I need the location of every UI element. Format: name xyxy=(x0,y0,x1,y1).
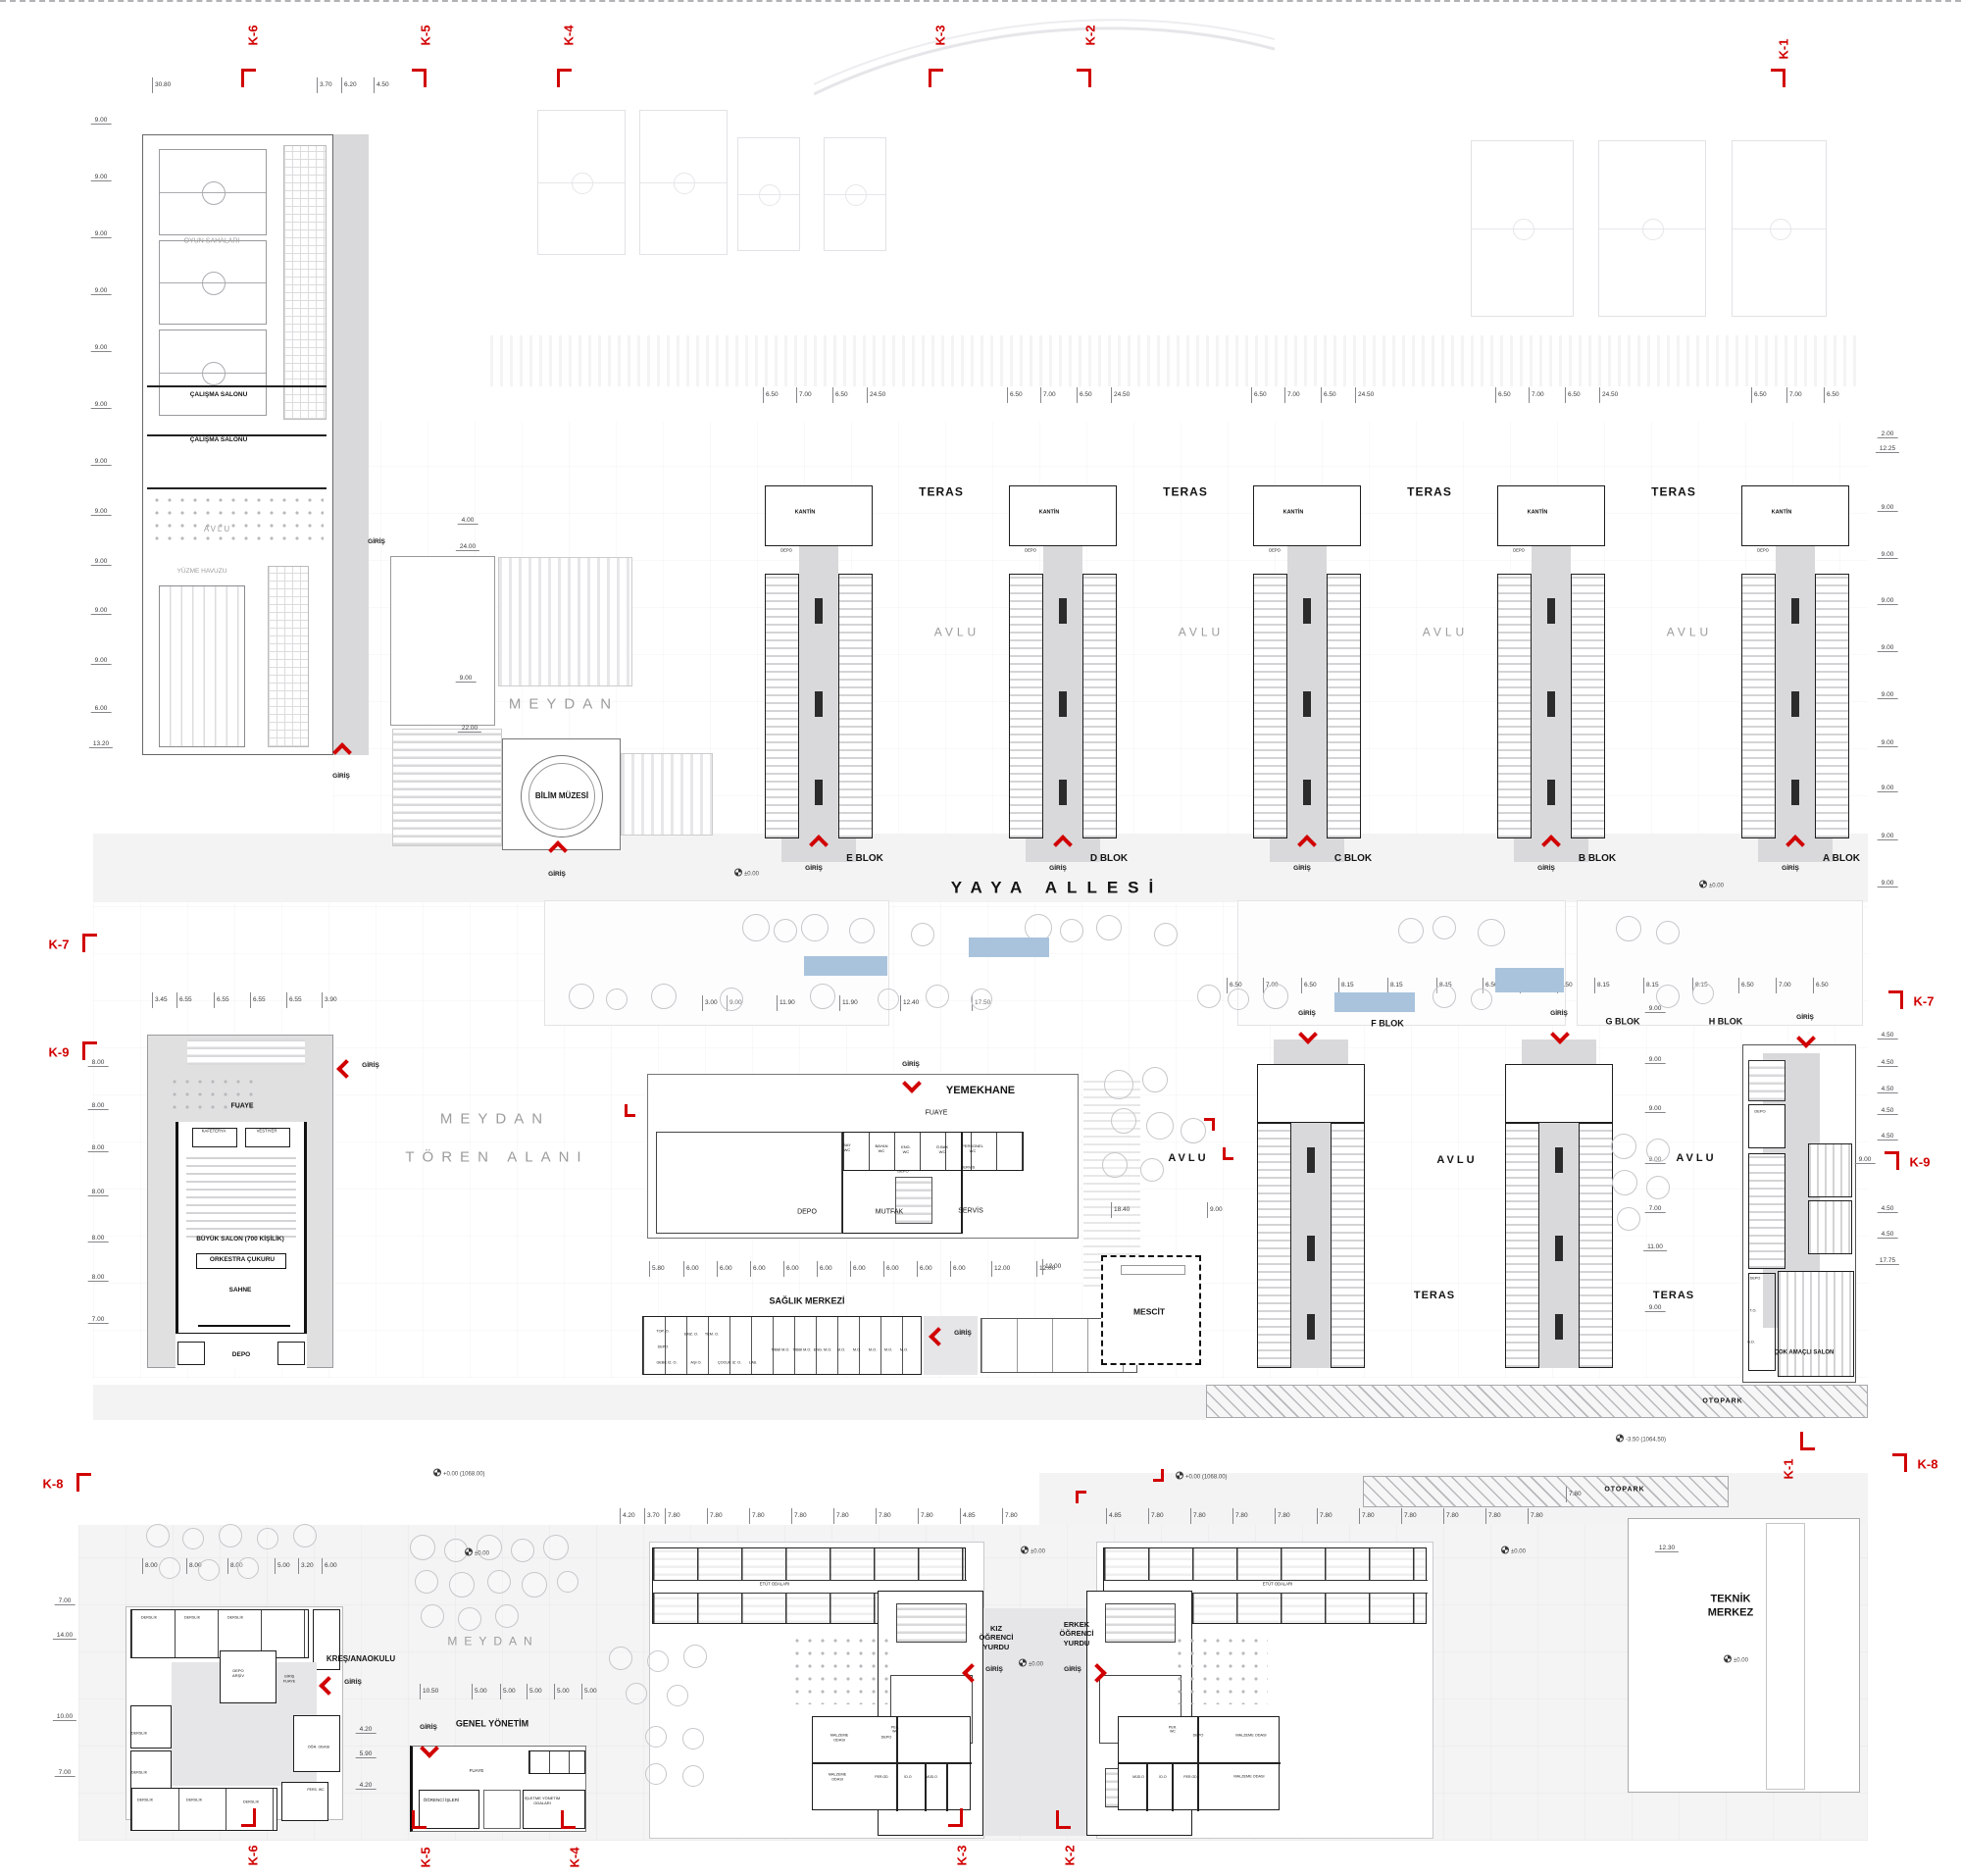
entrance-arrow-icon xyxy=(929,1325,946,1343)
dimension-label: 7.80 xyxy=(1275,1512,1290,1519)
canteen-rooms xyxy=(1741,485,1849,546)
area-label: PER.OD xyxy=(1183,1775,1196,1779)
area-label: M.O. xyxy=(869,1348,877,1353)
section-marker-label: K-2 xyxy=(1083,25,1098,46)
faint-court xyxy=(824,137,886,251)
area-label: DEPO xyxy=(232,1351,250,1359)
area-label: DEPO xyxy=(1269,547,1281,552)
area-label: TIBBİ M.O. xyxy=(772,1348,790,1353)
area-label: BÜYÜK SALON (700 KİŞİLİK) xyxy=(196,1236,284,1243)
dimension-label: 6.00 xyxy=(322,1562,337,1569)
dimension-label: 7.80 xyxy=(1443,1512,1459,1519)
section-marker-label: K-7 xyxy=(49,938,70,952)
area-label: TEM. O. xyxy=(705,1333,719,1338)
tree-icon xyxy=(1616,916,1641,941)
dimension-label: 8.00 xyxy=(142,1562,158,1569)
dimension-label: 4.85 xyxy=(960,1512,976,1519)
canteen-rooms xyxy=(1497,485,1605,546)
entrance-label: GİRİŞ xyxy=(1550,1010,1568,1018)
area-label: KAFETERYA xyxy=(202,1128,226,1133)
section-marker-bracket-icon xyxy=(1888,990,1903,1009)
dimension-label: 7.80 xyxy=(791,1512,807,1519)
area-label: M.O. xyxy=(884,1348,892,1353)
tree-icon xyxy=(198,1559,220,1581)
faint-court xyxy=(737,137,800,251)
area-label: DEPO xyxy=(1513,547,1525,552)
entrance-label: GİRİŞ xyxy=(332,773,350,781)
area-label: TERAS xyxy=(919,485,964,500)
tree-icon xyxy=(926,985,949,1008)
dimension-label: 9.00 xyxy=(1878,597,1898,605)
level-marker: +0.00 (1068.00) xyxy=(1176,1472,1228,1481)
tree-icon xyxy=(651,984,677,1009)
dimension-label: 8.00 xyxy=(88,1102,109,1110)
area-label: F BLOK xyxy=(1371,1018,1404,1029)
area-label: PER. WC xyxy=(891,1726,899,1735)
dimension-label: 24.50 xyxy=(1111,391,1130,398)
area-label: FUAYE xyxy=(926,1110,948,1119)
section-marker-label: K-4 xyxy=(568,1848,582,1868)
dimension-label: 5.00 xyxy=(554,1688,570,1695)
dimension-label: 9.00 xyxy=(1878,551,1898,559)
section-marker-label: K-9 xyxy=(1910,1155,1931,1170)
mihrab-niche xyxy=(1121,1265,1185,1275)
tree-icon xyxy=(1611,1134,1636,1159)
classroom-wing xyxy=(1009,574,1043,838)
entrance-label: GİRİŞ xyxy=(985,1666,1003,1674)
stair-core xyxy=(1555,1147,1563,1173)
wall xyxy=(1172,1762,1174,1811)
tree-icon xyxy=(410,1535,435,1560)
area-label: ÖĞR. ODASI xyxy=(308,1746,330,1750)
classroom-block-a xyxy=(1741,485,1849,862)
section-marker-label: K-6 xyxy=(246,1846,261,1866)
area-label: FUAYE xyxy=(470,1768,484,1774)
entrance-arrow-icon xyxy=(336,1057,354,1075)
dimension-label: 7.80 xyxy=(707,1512,723,1519)
area-label: FUAYE xyxy=(230,1103,253,1112)
dimension-label: 5.00 xyxy=(581,1688,597,1695)
dimension-label: 9.00 xyxy=(1878,880,1898,887)
dimension-label: 7.00 xyxy=(1529,391,1544,398)
meydan-building xyxy=(390,556,495,726)
auditorium-building xyxy=(147,1035,333,1368)
dimension-label: 9.00 xyxy=(1878,504,1898,512)
side-room xyxy=(177,1342,205,1365)
multipurpose-hall xyxy=(1778,1271,1854,1377)
tree-icon xyxy=(146,1524,170,1547)
dimension-label: 10.00 xyxy=(53,1713,76,1721)
dimension-label: 9.00 xyxy=(1878,644,1898,652)
dimension-label: 6.50 xyxy=(1495,391,1511,398)
area-label: DEPO xyxy=(797,1209,817,1218)
dimension-label: 11.00 xyxy=(1643,1243,1667,1251)
area-label: GİRİŞ FUAYE xyxy=(283,1674,295,1683)
tree-icon xyxy=(647,1650,669,1672)
dimension-label: 8.00 xyxy=(88,1144,109,1152)
entrance-arrow-icon xyxy=(1087,1661,1105,1679)
area-label: A BLOK xyxy=(1823,853,1860,866)
tree-icon xyxy=(219,1524,242,1547)
area-label: SAĞLIK MERKEZİ xyxy=(769,1295,844,1306)
wall xyxy=(1197,1717,1199,1811)
dimension-label: 6.00 xyxy=(683,1265,699,1272)
tree-icon xyxy=(1471,989,1492,1010)
area-label: DEPO xyxy=(1750,1277,1761,1282)
level-marker: ±0.00 xyxy=(1021,1546,1045,1555)
tree-icon xyxy=(1646,1139,1670,1162)
area-label: M.O. xyxy=(853,1348,861,1353)
entrance-arrow-icon xyxy=(1053,833,1071,850)
courtyard-tables xyxy=(792,1636,895,1704)
section-cut-icon xyxy=(625,1104,635,1117)
tree-icon xyxy=(237,1557,259,1579)
tree-icon xyxy=(449,1572,475,1597)
entrance-label: GİRİŞ xyxy=(362,1062,379,1070)
dimension-label: 8.15 xyxy=(1387,982,1403,989)
area-label: YÜZME HAVUZU xyxy=(177,568,227,576)
stair-core xyxy=(1307,1147,1315,1173)
dimension-label: 6.50 xyxy=(1824,391,1839,398)
dimension-label: 9.00 xyxy=(91,174,112,181)
amphitheatre-terraces xyxy=(498,557,632,686)
classroom-wing xyxy=(1505,1123,1539,1368)
tree-icon xyxy=(1104,1070,1133,1099)
entrance-arrow-icon xyxy=(319,1674,336,1692)
dimension-label: 6.50 xyxy=(1565,391,1581,398)
stair-core xyxy=(1791,780,1799,805)
area-label: SERVİS xyxy=(961,1165,976,1170)
dimension-label: 9.00 xyxy=(91,287,112,295)
dimension-label: 4.20 xyxy=(356,1726,377,1734)
dimension-label: 12.00 xyxy=(1042,1263,1061,1270)
service-shaft xyxy=(1766,1523,1805,1790)
section-marker-bracket-icon xyxy=(241,69,256,87)
tree-icon xyxy=(1228,989,1249,1010)
level-marker: ±0.00 xyxy=(1019,1659,1043,1668)
dimension-label: 8.15 xyxy=(1338,982,1354,989)
classroom-block-d xyxy=(1009,485,1117,862)
faint-court xyxy=(639,110,728,255)
dimension-label: 5.00 xyxy=(275,1562,290,1569)
area-label: DEPO xyxy=(881,1736,892,1741)
dimension-label: 24.50 xyxy=(1599,391,1618,398)
dimension-label: 4.50 xyxy=(1878,1231,1898,1239)
dimension-label: 4.50 xyxy=(1878,1133,1898,1141)
dimension-label: 4.50 xyxy=(1878,1059,1898,1067)
tree-icon xyxy=(911,923,934,946)
canteen-rooms xyxy=(1009,485,1117,546)
dimension-label: 9.00 xyxy=(1878,691,1898,699)
dimension-label: 5.90 xyxy=(356,1750,377,1758)
wall xyxy=(946,1762,948,1811)
dimension-label: 8.00 xyxy=(88,1059,109,1067)
tree-icon xyxy=(1478,919,1505,946)
dimension-label: 6.50 xyxy=(1738,982,1754,989)
faint-court xyxy=(1471,140,1574,317)
stair-core xyxy=(1547,780,1555,805)
entrance-arrow-icon xyxy=(420,1737,437,1754)
tree-icon xyxy=(1433,985,1456,1008)
area-label: KANTİN xyxy=(1772,510,1792,517)
dimension-label: 9.00 xyxy=(1855,1156,1876,1164)
tree-icon xyxy=(495,1604,519,1628)
dimension-label: 7.80 xyxy=(876,1512,891,1519)
section-marker-label: K-3 xyxy=(933,25,948,46)
office xyxy=(483,1790,521,1829)
entrance-label: GİRİŞ xyxy=(902,1061,920,1069)
dimension-label: 3.20 xyxy=(298,1562,314,1569)
section-cut-icon xyxy=(1153,1469,1164,1482)
section-marker-label: K-9 xyxy=(49,1045,70,1060)
game-court xyxy=(159,149,267,235)
area-label: SAHNE xyxy=(229,1287,252,1294)
entrance-arrow-icon xyxy=(1541,833,1559,850)
dimension-label: 9.00 xyxy=(91,117,112,125)
section-marker-bracket-icon xyxy=(241,1808,256,1827)
dimension-label: 9.00 xyxy=(91,344,112,352)
dimension-label: 8.00 xyxy=(88,1235,109,1242)
tree-icon xyxy=(1197,985,1221,1008)
entrance-label: GİRİŞ xyxy=(548,871,566,879)
dimension-label: 7.00 xyxy=(55,1769,75,1777)
stair-core xyxy=(1303,598,1311,624)
tree-icon xyxy=(543,1535,569,1560)
dimension-label: 6.50 xyxy=(1813,982,1829,989)
study-hall-room xyxy=(147,438,327,489)
rooms xyxy=(1748,1153,1785,1269)
area-label: KIZ ÖĞRENCİ YURDU xyxy=(979,1624,1013,1651)
stair-core xyxy=(1307,1314,1315,1340)
tree-icon xyxy=(522,1572,547,1597)
dimension-label: 9.00 xyxy=(1645,1304,1666,1312)
classroom-block-e xyxy=(765,485,873,862)
dimension-label: 7.80 xyxy=(665,1512,680,1519)
dimension-label: 9.00 xyxy=(1878,739,1898,747)
tree-icon xyxy=(645,1763,667,1785)
area-label: ETÜT ODALARI xyxy=(760,1581,789,1586)
section-cut-icon xyxy=(1204,1118,1215,1131)
tree-icon xyxy=(458,1607,481,1631)
tree-icon xyxy=(1102,1152,1128,1178)
tree-icon xyxy=(1646,1176,1670,1199)
dimension-label: 7.80 xyxy=(1317,1512,1332,1519)
area-label: Ö.BAK WC xyxy=(936,1144,948,1154)
health-center-building xyxy=(642,1316,922,1375)
area-label: AVLU xyxy=(1676,1152,1716,1166)
dimension-label: 6.00 xyxy=(91,705,112,713)
dimension-label: 8.15 xyxy=(1594,982,1610,989)
dimension-label: 9.00 xyxy=(1207,1206,1223,1213)
tree-icon xyxy=(1692,983,1714,1004)
faint-court xyxy=(537,110,626,255)
tree-icon xyxy=(682,1765,704,1787)
dimension-label: 5.00 xyxy=(500,1688,516,1695)
level-marker: ±0.00 xyxy=(734,869,759,878)
dimension-label: 7.80 xyxy=(1566,1491,1582,1497)
entrance-label: GİRİŞ xyxy=(1782,865,1799,873)
area-label: DERSLİK xyxy=(186,1799,202,1803)
main-hall xyxy=(176,1122,307,1293)
dimension-label: 6.50 xyxy=(1301,982,1317,989)
area-label: MUTFAK xyxy=(876,1209,903,1218)
area-label: TÖREN ALANI xyxy=(405,1149,588,1168)
section-marker-bracket-icon xyxy=(561,1810,576,1829)
tree-icon xyxy=(293,1524,317,1547)
dimension-label: 3.00 xyxy=(702,999,718,1006)
dimension-label: 4.50 xyxy=(1878,1086,1898,1093)
entrance-label: GİRİŞ xyxy=(344,1679,362,1687)
section-marker-label: K-3 xyxy=(955,1846,970,1866)
dimension-label: 9.00 xyxy=(91,657,112,665)
section-marker-label: K-7 xyxy=(1914,994,1935,1009)
administration-building xyxy=(410,1746,586,1832)
section-marker-bracket-icon xyxy=(1077,69,1091,87)
area-label: TEKNİK MERKEZ xyxy=(1708,1593,1753,1620)
area-label: TERAS xyxy=(1407,485,1452,500)
area-label: MALZEME ODASI xyxy=(829,1772,846,1781)
multipurpose-building xyxy=(1742,1044,1856,1383)
classroom-wing xyxy=(1497,574,1532,838)
dimension-label: 7.00 xyxy=(1786,391,1802,398)
section-marker-bracket-icon xyxy=(412,1810,427,1829)
dimension-label: 11.90 xyxy=(839,999,858,1006)
classroom-wing xyxy=(1257,1123,1291,1368)
stair-core xyxy=(1059,780,1067,805)
depo-rooms xyxy=(1257,1064,1365,1123)
area-label: M.O. xyxy=(900,1348,908,1353)
area-label: DERSLİK xyxy=(243,1800,259,1805)
section-marker-bracket-icon xyxy=(948,1808,963,1827)
dimension-label: 11.90 xyxy=(777,999,795,1006)
section-marker-label: K-5 xyxy=(419,1848,433,1868)
tree-icon xyxy=(609,1647,632,1670)
area-label: SERVİS xyxy=(958,1208,983,1217)
courtyard-furniture xyxy=(152,495,324,540)
dimension-label: 7.80 xyxy=(1002,1512,1018,1519)
tree-icon xyxy=(1398,918,1424,943)
entrance-label: GİRİŞ xyxy=(1298,1010,1316,1018)
area-label: MESCİT xyxy=(1133,1307,1165,1318)
wc-cells xyxy=(528,1750,585,1774)
student-affairs-room xyxy=(419,1790,479,1829)
area-label: KANTİN xyxy=(1039,510,1060,517)
entrance-label: GİRİŞ xyxy=(420,1724,437,1732)
area-label: B BLOK xyxy=(1579,853,1616,866)
area-label: BİLİM MÜZESİ xyxy=(535,791,588,801)
area-label: AVLU xyxy=(1667,626,1712,640)
water-feature xyxy=(804,956,887,976)
classroom-block-f xyxy=(1257,1039,1365,1368)
entry-stairs xyxy=(187,1039,305,1065)
area-label: PER.OD xyxy=(875,1775,887,1779)
stair-core xyxy=(1303,691,1311,717)
area-label: KANTİN xyxy=(1283,510,1304,517)
dimension-label: 9.00 xyxy=(1645,1105,1666,1113)
tree-icon xyxy=(1656,985,1680,1008)
dimension-label: 4.85 xyxy=(1106,1512,1122,1519)
entrance-label: GİRİŞ xyxy=(1064,1666,1081,1674)
tree-icon xyxy=(1111,1108,1136,1134)
dimension-label: 7.00 xyxy=(1284,391,1300,398)
dimension-label: 8.15 xyxy=(1643,982,1659,989)
area-label: G BLOK xyxy=(1606,1016,1640,1027)
dimension-label: 7.80 xyxy=(1401,1512,1417,1519)
classroom-wing xyxy=(1815,574,1849,838)
section-marker-bracket-icon xyxy=(1800,1432,1815,1450)
wall xyxy=(1119,1762,1281,1764)
dimension-label: 4.20 xyxy=(620,1512,635,1519)
circulation-strip xyxy=(333,134,369,755)
stair-core xyxy=(1547,691,1555,717)
dimension-label: 6.00 xyxy=(917,1265,932,1272)
area-label: AVLU xyxy=(1423,626,1468,640)
dimension-label: 2.00 xyxy=(1878,431,1898,438)
dimension-label: 6.00 xyxy=(950,1265,966,1272)
dimension-label: 7.00 xyxy=(1040,391,1056,398)
area-label: OTOPARK xyxy=(1604,1487,1644,1496)
parking-strip xyxy=(1206,1385,1868,1418)
area-label: İD.O xyxy=(904,1775,911,1779)
depot-archive-room xyxy=(220,1650,277,1703)
service-road xyxy=(93,1385,1206,1420)
dimension-label: 6.55 xyxy=(214,996,229,1003)
stair-core xyxy=(815,780,823,805)
dimension-label: 14.00 xyxy=(53,1632,76,1640)
area-label: C BLOK xyxy=(1334,853,1372,866)
entrance-arrow-icon xyxy=(332,740,350,758)
classroom xyxy=(130,1705,172,1749)
area-label: EMZ. O. xyxy=(684,1333,698,1338)
dimension-label: 10.50 xyxy=(420,1688,438,1695)
depot-area xyxy=(656,1132,842,1234)
area-label: PERS. WC xyxy=(307,1788,324,1792)
area-label: MALZEME ODASI xyxy=(830,1733,848,1742)
stair-core xyxy=(815,598,823,624)
stairs xyxy=(1105,1603,1176,1643)
area-label: AVLU xyxy=(1179,626,1224,640)
area-label: DERSLİK xyxy=(184,1616,200,1621)
stage-edge xyxy=(198,1325,290,1327)
classroom-wing xyxy=(1741,574,1776,838)
area-label: GENEL YÖNETİM xyxy=(456,1718,528,1729)
dimension-label: 9.00 xyxy=(91,558,112,566)
section-marker-label: K-4 xyxy=(562,25,577,46)
dimension-label: 3.70 xyxy=(644,1512,660,1519)
area-label: ENG. WC xyxy=(901,1144,911,1154)
section-marker-bracket-icon xyxy=(1056,1810,1071,1829)
dimension-label: 6.50 xyxy=(1007,391,1023,398)
stair-core xyxy=(815,691,823,717)
area-label: OYUN SAHALARI xyxy=(184,238,240,247)
area-label: OTOPARK xyxy=(1702,1398,1742,1407)
area-label: DERSLİK xyxy=(137,1799,153,1803)
dimension-label: 18.40 xyxy=(1111,1206,1130,1213)
game-court xyxy=(159,240,267,325)
dimension-label: 30.80 xyxy=(152,81,171,88)
area-label: AVLU xyxy=(1436,1154,1477,1168)
entrance-label: GİRİŞ xyxy=(1537,865,1555,873)
tree-icon xyxy=(801,914,829,941)
entrance-arrow-icon xyxy=(1297,833,1315,850)
dimension-label: 7.00 xyxy=(796,391,812,398)
section-marker-label: K-5 xyxy=(419,25,433,46)
classroom-wing xyxy=(838,574,873,838)
stair-core xyxy=(1547,598,1555,624)
swimming-pool xyxy=(159,585,245,747)
section-marker-bracket-icon xyxy=(929,69,943,87)
area-label: DEPO xyxy=(1757,547,1769,552)
